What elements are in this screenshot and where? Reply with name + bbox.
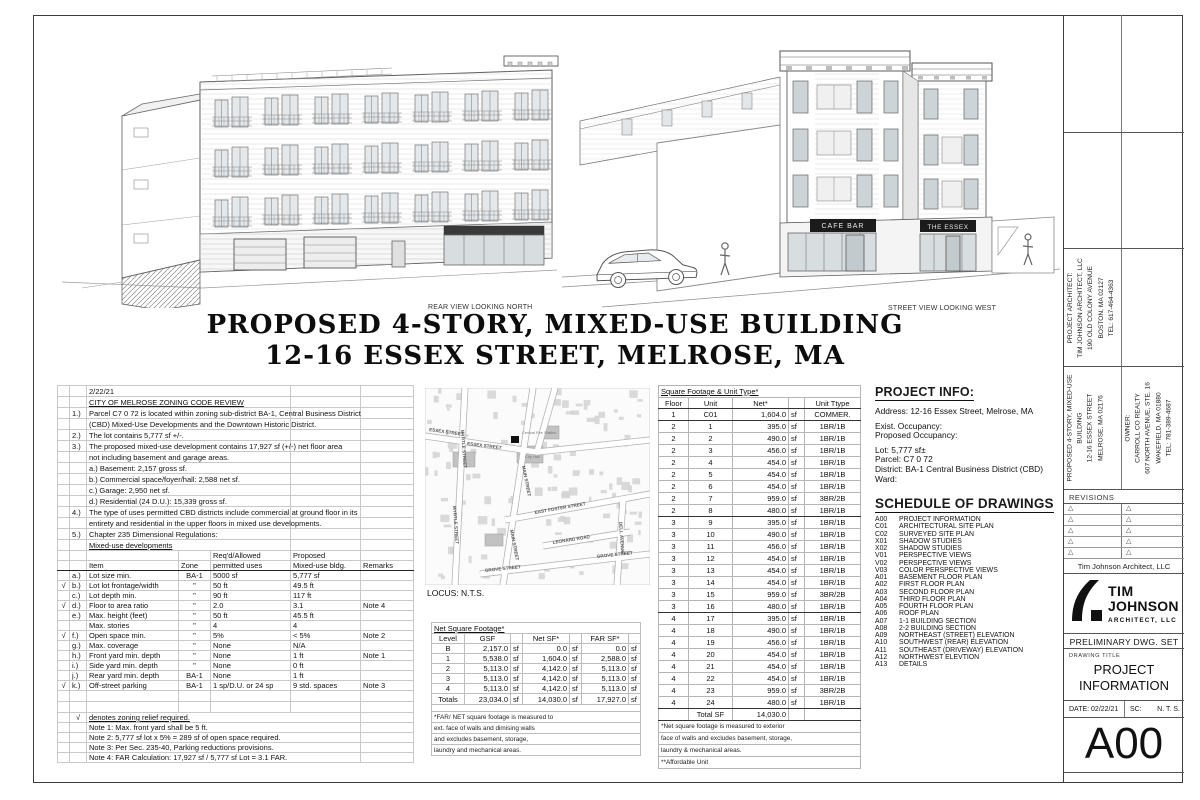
zoning-proposed: 1 ft	[291, 651, 361, 661]
project-info-line: Proposed Occupancy:	[875, 431, 1063, 441]
unit-type: COMMER.	[805, 409, 861, 421]
zoning-note-text: The proposed mixed-use development conta…	[87, 441, 291, 452]
zoning-item-number: 1.)	[70, 408, 87, 419]
map-building-footprint	[466, 474, 471, 480]
owner-line: TEL: 781-389-4687	[1164, 367, 1174, 490]
zoning-proposed: 3.1	[291, 601, 361, 611]
unit-sf-label: sf	[789, 601, 805, 613]
rendering-street-view: CAFE BAR THE ESSEX	[562, 25, 1060, 310]
table-row: d.) Residential (24 D.U.): 15,339 gross …	[58, 496, 414, 507]
table-cell	[361, 713, 414, 723]
unit-number: 2	[689, 433, 733, 445]
table-cell	[361, 496, 414, 507]
revision-triangle-icon: △	[1068, 515, 1073, 523]
project-line: MELROSE, MA 02176	[1096, 367, 1106, 490]
zoning-proposed: 49.5 ft	[291, 581, 361, 591]
schedule-item-name: DETAILS	[899, 661, 927, 668]
map-building-footprint	[425, 467, 428, 475]
map-building-footprint	[579, 571, 583, 575]
unit-net-sf: 480.0	[733, 697, 789, 709]
map-building-footprint	[587, 418, 596, 422]
unit-sf-label: sf	[789, 637, 805, 649]
zoning-required: 2.0	[211, 601, 291, 611]
unit-number: 19	[689, 637, 733, 649]
table-row: CITY OF MELROSE ZONING CODE REVIEW	[58, 397, 414, 408]
map-building-footprint	[619, 417, 624, 420]
project-line: 12-16 ESSEX STREET	[1086, 367, 1096, 490]
unit-sf-label: sf	[789, 421, 805, 433]
zoning-row-letter: c.)	[70, 591, 87, 601]
table-cell	[361, 430, 414, 441]
table-row: Note 2: 5,777 sf lot x 5% = 289 sf of op…	[58, 733, 414, 743]
unit-number: 11	[689, 541, 733, 553]
zoning-proposed: N/A	[291, 641, 361, 651]
zoning-code-review: 2/22/21CITY OF MELROSE ZONING CODE REVIE…	[57, 385, 414, 763]
project-line: BUILDING	[1076, 367, 1086, 490]
schedule-item: A071-1 BUILDING SECTION	[875, 618, 1063, 625]
unit-type: 1BR/1B	[805, 481, 861, 493]
zoning-proposed: 9 std. spaces	[291, 681, 361, 691]
table-cell	[179, 702, 211, 713]
unit-floor: 4	[659, 661, 689, 673]
table-cell	[58, 743, 70, 753]
unit-net-sf: 454.0	[733, 577, 789, 589]
project-info: PROJECT INFO: Address: 12-16 Essex Stree…	[875, 383, 1063, 668]
unit-floor: 4	[659, 613, 689, 625]
zoning-remark	[361, 661, 414, 671]
netsf-totals-far: 17,927.0	[582, 694, 629, 705]
owner-line: CARROLL CO REALTY	[1134, 367, 1144, 490]
schedule-item: A03SECOND FLOOR PLAN	[875, 589, 1063, 596]
netsf-far: 2,588.0	[582, 654, 629, 664]
unit-type: 1BR/1B	[805, 637, 861, 649]
table-row: c.) Garage: 2,950 net sf.	[58, 485, 414, 496]
table-row: 21395.0sf1BR/1B	[659, 421, 861, 433]
unit-total-value: 14,030.0	[733, 709, 789, 721]
unit-type: 1BR/1B	[805, 673, 861, 685]
unit-net-sf: 480.0	[733, 601, 789, 613]
table-row: Totals23,034.0sf14,030.0sf17,927.0sf	[432, 694, 641, 705]
table-row: 15,538.0sf1,604.0sf2,588.0sf	[432, 654, 641, 664]
schedule-item-code: A12	[875, 654, 899, 661]
map-building-footprint	[469, 556, 472, 563]
drawing-title-cell: DRAWING TITLE PROJECT INFORMATION	[1064, 649, 1184, 701]
unit-sf-label: sf	[789, 481, 805, 493]
logo-tim: TIM	[1108, 583, 1134, 599]
revision-triangle-icon: △	[1126, 537, 1131, 545]
table-row: i.)Side yard min. depth"None0 ft	[58, 661, 414, 671]
unit-table-footnote: *Net square footage is measured to exter…	[659, 721, 861, 733]
zoning-item-number	[70, 419, 87, 430]
zoning-relief-check: √	[58, 631, 70, 641]
netsf-header	[629, 634, 641, 644]
netsf-gsf: 5,113.0	[465, 674, 511, 684]
revision-triangle-icon: △	[1126, 548, 1131, 556]
table-row: 310490.0sf1BR/1B	[659, 529, 861, 541]
table-row: √k.)Off-street parkingBA-11 sp/D.U. or 2…	[58, 681, 414, 691]
table-row: Note 3: Per Sec. 235-40, Parking reducti…	[58, 743, 414, 753]
zoning-proposed: 5,777 sf	[291, 571, 361, 581]
table-cell	[291, 529, 361, 540]
map-building-footprint	[438, 574, 443, 577]
table-cell: sf	[511, 664, 523, 674]
zoning-relief-check	[70, 743, 87, 753]
map-building-footprint	[548, 487, 551, 491]
table-cell: sf	[511, 674, 523, 684]
unit-sf-label: sf	[789, 661, 805, 673]
zoning-relief-check	[58, 641, 70, 651]
zoning-item-number	[70, 452, 87, 463]
unit-sf-label: sf	[789, 541, 805, 553]
schedule-item-code: A13	[875, 661, 899, 668]
zoning-required: 1 sp/D.U. or 24 sp	[211, 681, 291, 691]
table-cell	[805, 709, 861, 721]
table-cell	[361, 518, 414, 529]
zoning-row-letter: i.)	[70, 661, 87, 671]
map-building-footprint	[603, 514, 610, 519]
map-building-footprint	[564, 517, 571, 525]
unit-net-sf: 959.0	[733, 685, 789, 697]
table-cell	[58, 485, 70, 496]
zoning-zone: "	[179, 661, 211, 671]
netsf-net: 0.0	[523, 644, 570, 654]
table-cell	[179, 691, 211, 702]
table-cell	[291, 430, 361, 441]
owner-line: WAKEFIELD, MA 01880	[1154, 367, 1164, 490]
table-row: 2.)The lot contains 5,777 sf +/-.	[58, 430, 414, 441]
table-row: j.)Rear yard min. depthBA-1None1 ft	[58, 671, 414, 681]
table-row: Total SF14,030.0	[659, 709, 861, 721]
map-building-footprint	[566, 411, 575, 414]
table-row: Max. stories"44	[58, 621, 414, 631]
drawing-sheet: CAFE BAR THE ESSEX	[0, 0, 1200, 800]
map-building-footprint	[595, 416, 600, 424]
zoning-relief-check: √	[70, 713, 87, 723]
table-cell: sf	[570, 674, 582, 684]
unit-type: 1BR/1B	[805, 553, 861, 565]
table-cell	[58, 452, 70, 463]
schedule-item-name: THIRD FLOOR PLAN	[899, 596, 966, 603]
project-info-line: District: BA-1 Central Business District…	[875, 465, 1063, 475]
map-building-footprint	[446, 404, 452, 408]
table-cell: sf	[629, 674, 641, 684]
schedule-item-name: SHADOW STUDIES	[899, 538, 962, 545]
project-info-line: Ward:	[875, 475, 1063, 485]
table-cell: sf	[511, 644, 523, 654]
schedule-item: A13DETAILS	[875, 661, 1063, 668]
table-row: h.)Front yard min. depth"None1 ftNote 1	[58, 651, 414, 661]
unit-net-sf: 1,604.0	[733, 409, 789, 421]
schedule-item: A12NORTHWEST ELEVTION	[875, 654, 1063, 661]
netsf-level: 3	[432, 674, 465, 684]
schedule-item-name: PROJECT INFORMATION	[899, 516, 981, 523]
table-row: laundry & mechanical areas.	[659, 745, 861, 757]
revision-triangle-icon: △	[1126, 515, 1131, 523]
unit-net-sf: 454.0	[733, 457, 789, 469]
table-row: 421454.0sf1BR/1B	[659, 661, 861, 673]
netsf-far: 0.0	[582, 644, 629, 654]
map-building-footprint	[554, 454, 562, 460]
schedule-item: V02PERSPECTIVE VIEWS	[875, 560, 1063, 567]
zoning-remark	[361, 581, 414, 591]
netsf-net: 4,142.0	[523, 664, 570, 674]
unit-floor: 4	[659, 697, 689, 709]
revisions-rows: △△△△△△△△△△	[1064, 504, 1184, 559]
zoning-note-text: 2/22/21	[87, 386, 291, 397]
unit-type: 1BR/1B	[805, 577, 861, 589]
zoning-remark	[361, 611, 414, 621]
owner-block: OWNER: CARROLL CO REALTY 607 NORTH AVENU…	[1124, 367, 1184, 490]
unit-type: 1BR/1B	[805, 445, 861, 457]
zoning-note-text: Chapter 235 Dimensional Regulations:	[87, 529, 291, 540]
zoning-relief-check	[70, 733, 87, 743]
zoning-row-letter: e.)	[70, 611, 87, 621]
table-cell	[58, 463, 70, 474]
table-row: LevelGSFNet SF*FAR SF*	[432, 634, 641, 644]
date-value: DATE: 02/22/21	[1069, 701, 1118, 717]
netsf-footnote: laundry and mechanical areas.	[432, 745, 641, 756]
unit-table-header: Unit Ttype	[805, 398, 861, 409]
unit-sf-label: sf	[789, 553, 805, 565]
map-building-footprint	[487, 391, 496, 399]
schedule-item: A11SOUTHEAST (DRIVEWAY) ELEVATION	[875, 647, 1063, 654]
table-row: laundry and mechanical areas.	[432, 745, 641, 756]
unit-type: 1BR/1B	[805, 505, 861, 517]
table-row: 5.)Chapter 235 Dimensional Regulations:	[58, 529, 414, 540]
schedule-item-code: V01	[875, 552, 899, 559]
table-cell: sf	[570, 664, 582, 674]
zoning-note-text: The lot contains 5,777 sf +/-.	[87, 430, 291, 441]
table-row: 24454.0sf1BR/1B	[659, 457, 861, 469]
zoning-header: Mixed-use bldg.	[291, 561, 361, 571]
unit-sf-label: sf	[789, 673, 805, 685]
table-cell	[58, 408, 70, 419]
unit-sf-label: sf	[789, 505, 805, 517]
netsf-gsf: 2,157.0	[465, 644, 511, 654]
unit-floor: 3	[659, 565, 689, 577]
map-building-footprint	[441, 498, 448, 502]
table-row: Req'd/AllowedProposed	[58, 551, 414, 561]
schedule-item-code: A02	[875, 581, 899, 588]
storefront-sign-the-essex: THE ESSEX	[927, 224, 968, 231]
table-row: 311456.0sf1BR/1B	[659, 541, 861, 553]
table-row: Note 1: Max. front yard shall be 5 ft.	[58, 723, 414, 733]
schedule-item-code: A10	[875, 639, 899, 646]
unit-sf-label: sf	[789, 589, 805, 601]
zoning-remark	[361, 671, 414, 681]
zoning-item: Side yard min. depth	[87, 661, 179, 671]
unit-type: 1BR/1B	[805, 565, 861, 577]
map-building-footprint	[638, 399, 643, 402]
project-name-block: PROPOSED 4-STORY, MIXED-USE BUILDING 12-…	[1066, 367, 1120, 490]
table-row: face of walls and excludes basement, sto…	[659, 733, 861, 745]
zoning-proposed: 45.5 ft	[291, 611, 361, 621]
unit-net-sf: 454.0	[733, 553, 789, 565]
table-cell	[291, 485, 361, 496]
unit-number: 3	[689, 445, 733, 457]
table-cell	[58, 561, 70, 571]
main-title-line1: PROPOSED 4-STORY, MIXED-USE BUILDING	[150, 310, 960, 341]
project-info-title: PROJECT INFO:	[875, 385, 974, 401]
zoning-header	[58, 551, 70, 561]
table-row: not including basement and garage areas.	[58, 452, 414, 463]
zoning-note-text: c.) Garage: 2,950 net sf.	[87, 485, 291, 496]
map-building-footprint	[573, 472, 580, 476]
architect-line: 190 OLD COLONY AVENUE	[1086, 249, 1096, 367]
unit-number: 12	[689, 553, 733, 565]
revision-triangle-icon: △	[1068, 526, 1073, 534]
table-row: a.) Basement: 2,157 gross sf.	[58, 463, 414, 474]
unit-floor: 4	[659, 625, 689, 637]
netsf-level: 2	[432, 664, 465, 674]
unit-sf-label: sf	[789, 577, 805, 589]
table-cell	[58, 691, 70, 702]
zoning-remark	[361, 621, 414, 631]
table-row: 25,113.0sf4,142.0sf5,113.0sf	[432, 664, 641, 674]
unit-number: 4	[689, 457, 733, 469]
architect-line: PROJECT ARCHITECT:	[1066, 249, 1076, 367]
firm-name-row: Tim Johnson Architect, LLC	[1064, 559, 1184, 574]
zoning-proposed: 1 ft	[291, 671, 361, 681]
unit-floor: 3	[659, 589, 689, 601]
zoning-remark: Note 2	[361, 631, 414, 641]
netsf-totals-label: Totals	[432, 694, 465, 705]
table-cell	[70, 691, 87, 702]
unit-table-header	[789, 398, 805, 409]
schedule-item: V01PERSPECTIVE VIEWS	[875, 552, 1063, 559]
unit-type: 1BR/1B	[805, 457, 861, 469]
unit-floor: 4	[659, 649, 689, 661]
table-row: 312454.0sf1BR/1B	[659, 553, 861, 565]
schedule-item-name: FIRST FLOOR PLAN	[899, 581, 964, 588]
unit-net-sf: 454.0	[733, 481, 789, 493]
netsf-gsf: 5,113.0	[465, 684, 511, 694]
zoning-note-text: Note 3: Per Sec. 235-40, Parking reducti…	[87, 743, 361, 753]
zoning-required: None	[211, 651, 291, 661]
unit-type: 1BR/1B	[805, 613, 861, 625]
map-building-footprint	[630, 512, 637, 515]
table-row: 35,113.0sf4,142.0sf5,113.0sf	[432, 674, 641, 684]
unit-net-sf: 480.0	[733, 505, 789, 517]
zoning-note-text: b.) Commercial space/foyer/hall: 2,588 n…	[87, 474, 291, 485]
table-cell	[58, 474, 70, 485]
table-row: Mixed-use developments	[58, 540, 414, 551]
zoning-item-number	[70, 474, 87, 485]
unit-type: 1BR/1B	[805, 433, 861, 445]
zoning-item-number	[70, 386, 87, 397]
unit-table-title: Square Footage & Unit Type*	[659, 386, 861, 398]
map-building-footprint	[629, 390, 637, 398]
table-cell	[58, 430, 70, 441]
sheet-number-cell: A00	[1064, 718, 1184, 773]
schedule-item-name: FOURTH FLOOR PLAN	[899, 603, 973, 610]
unit-type: 1BR/1B	[805, 649, 861, 661]
zoning-item: Max. height (feet)	[87, 611, 179, 621]
zoning-zone: "	[179, 581, 211, 591]
net-square-footage: Net Square Footage*LevelGSFNet SF*FAR SF…	[431, 622, 641, 756]
map-building-footprint	[472, 474, 480, 479]
table-cell	[361, 691, 414, 702]
zoning-required: None	[211, 641, 291, 651]
table-row	[58, 691, 414, 702]
table-cell	[87, 691, 179, 702]
map-building-footprint	[436, 452, 440, 457]
unit-floor: 2	[659, 481, 689, 493]
zoning-relief-check	[58, 651, 70, 661]
net-square-footage-table: Net Square Footage*LevelGSFNet SF*FAR SF…	[431, 622, 641, 756]
table-cell: sf	[570, 684, 582, 694]
unit-number: 15	[689, 589, 733, 601]
map-building-footprint	[535, 488, 543, 496]
map-building-footprint	[433, 452, 437, 459]
unit-net-sf: 456.0	[733, 541, 789, 553]
schedule-item-name: 1-1 BUILDING SECTION	[899, 618, 976, 625]
scale-value: N. T. S.	[1157, 701, 1180, 717]
table-row: √f.)Open space min."5%< 5%Note 2	[58, 631, 414, 641]
table-row: 23456.0sf1BR/1B	[659, 445, 861, 457]
table-row: 314454.0sf1BR/1B	[659, 577, 861, 589]
schedule-item: A06ROOF PLAN	[875, 610, 1063, 617]
zoning-note-text: CITY OF MELROSE ZONING CODE REVIEW	[87, 397, 291, 408]
unit-net-sf: 454.0	[733, 649, 789, 661]
table-cell	[70, 561, 87, 571]
netsf-gsf: 5,113.0	[465, 664, 511, 674]
zoning-relief-check: √	[58, 681, 70, 691]
map-building-footprint	[492, 518, 495, 526]
unit-floor: 4	[659, 685, 689, 697]
netsf-footnote: and excludes basement, storage,	[432, 734, 641, 745]
unit-net-sf: 454.0	[733, 661, 789, 673]
netsf-net: 1,604.0	[523, 654, 570, 664]
unit-sf-label: sf	[789, 625, 805, 637]
table-cell: sf	[511, 694, 523, 705]
architect-line: TIM JOHNSON ARCHITECT, LLC	[1076, 249, 1086, 367]
zoning-row-letter	[70, 621, 87, 631]
zoning-header	[87, 551, 179, 561]
schedule-item: X02SHADOW STUDIES	[875, 545, 1063, 552]
zoning-row-letter: d.)	[70, 601, 87, 611]
table-row	[432, 705, 641, 712]
map-building-footprint	[484, 496, 491, 504]
zoning-proposed: < 5%	[291, 631, 361, 641]
titleblock-empty-cell	[1064, 15, 1184, 133]
table-cell: sf	[629, 654, 641, 664]
zoning-note-text: not including basement and garage areas.	[87, 452, 291, 463]
table-cell	[361, 386, 414, 397]
table-cell	[361, 753, 414, 763]
unit-number: C01	[689, 409, 733, 421]
schedule-item-code: A03	[875, 589, 899, 596]
table-cell	[70, 702, 87, 713]
table-cell: sf	[629, 644, 641, 654]
zoning-remark	[361, 571, 414, 581]
zoning-row-letter: g.)	[70, 641, 87, 651]
map-building-footprint	[543, 442, 547, 448]
zoning-required: 5000 sf	[211, 571, 291, 581]
schedule-item-name: PERSPECTIVE VIEWS	[899, 552, 971, 559]
schedule-items: A00PROJECT INFORMATIONC01ARCHITECTURAL S…	[875, 516, 1063, 668]
map-building-footprint	[566, 494, 569, 498]
table-row: √denotes zoning relief required.	[58, 713, 414, 723]
unit-type: 1BR/1B	[805, 421, 861, 433]
unit-number: 14	[689, 577, 733, 589]
zoning-note-text: Note 4: FAR Calculation: 17,927 sf / 5,7…	[87, 753, 361, 763]
table-cell	[58, 496, 70, 507]
unit-floor: 2	[659, 505, 689, 517]
schedule-item-code: A05	[875, 603, 899, 610]
map-building-footprint	[493, 412, 498, 419]
table-row: 420454.0sf1BR/1B	[659, 649, 861, 661]
